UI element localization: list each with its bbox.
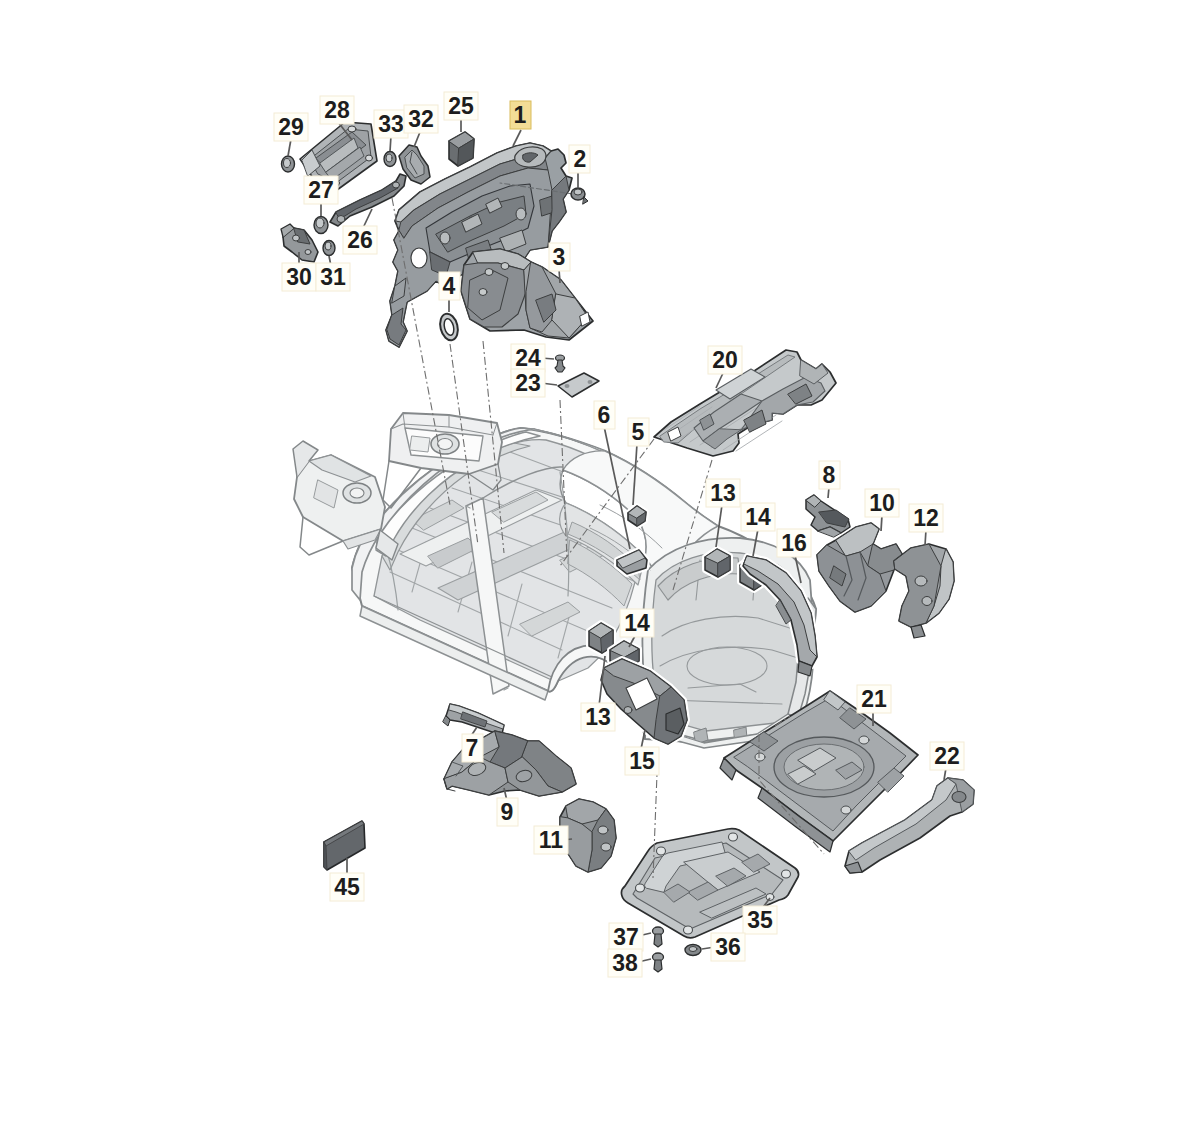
svg-text:38: 38 <box>612 950 638 976</box>
svg-text:13: 13 <box>585 704 611 730</box>
svg-text:16: 16 <box>781 530 807 556</box>
svg-text:32: 32 <box>408 106 434 132</box>
svg-text:21: 21 <box>861 686 887 712</box>
svg-text:23: 23 <box>515 370 541 396</box>
svg-text:3: 3 <box>553 244 566 270</box>
svg-text:33: 33 <box>378 111 404 137</box>
svg-text:25: 25 <box>448 93 474 119</box>
svg-text:8: 8 <box>823 462 836 488</box>
svg-text:45: 45 <box>334 874 360 900</box>
svg-text:4: 4 <box>443 273 456 299</box>
svg-text:28: 28 <box>324 97 350 123</box>
svg-text:37: 37 <box>613 924 639 950</box>
svg-text:10: 10 <box>869 490 895 516</box>
svg-text:14: 14 <box>624 610 650 636</box>
svg-text:13: 13 <box>710 480 736 506</box>
svg-text:22: 22 <box>934 743 960 769</box>
svg-text:30: 30 <box>286 264 312 290</box>
svg-text:11: 11 <box>539 827 564 853</box>
svg-text:29: 29 <box>278 114 304 140</box>
svg-text:24: 24 <box>515 345 541 371</box>
svg-text:14: 14 <box>745 504 771 530</box>
svg-text:6: 6 <box>598 402 611 428</box>
svg-text:9: 9 <box>501 799 514 825</box>
svg-text:7: 7 <box>466 735 479 761</box>
svg-text:12: 12 <box>913 505 939 531</box>
svg-text:15: 15 <box>629 748 655 774</box>
svg-text:20: 20 <box>712 347 738 373</box>
svg-text:27: 27 <box>308 177 334 203</box>
svg-text:1: 1 <box>514 102 527 128</box>
svg-text:31: 31 <box>320 264 346 290</box>
svg-text:5: 5 <box>632 419 645 445</box>
svg-text:26: 26 <box>347 227 373 253</box>
svg-text:36: 36 <box>715 934 741 960</box>
svg-text:35: 35 <box>747 907 773 933</box>
svg-text:2: 2 <box>574 146 587 172</box>
